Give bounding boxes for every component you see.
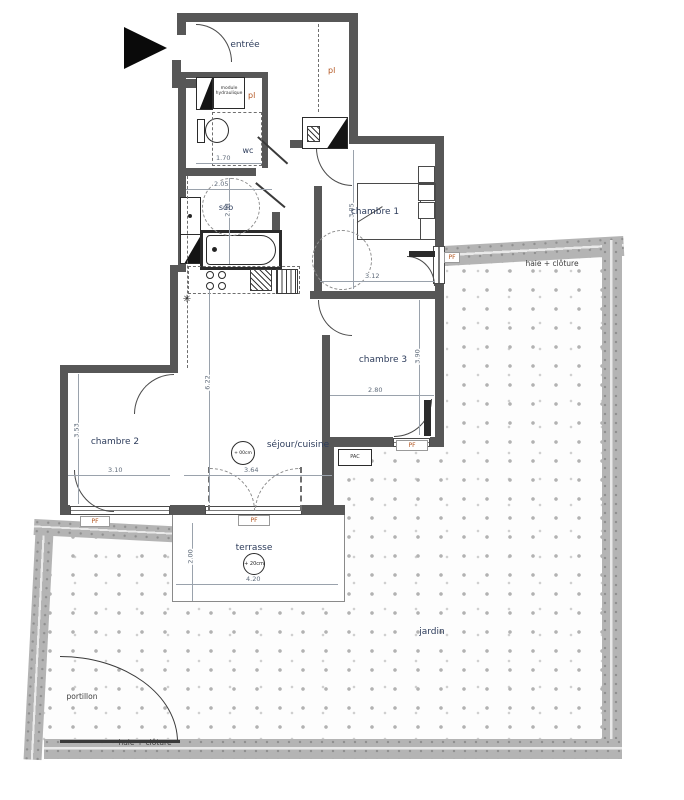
room-label-wc: wc (238, 146, 258, 155)
room-label-chambre1: chambre 1 (340, 207, 410, 217)
door-leaf-chambre3-pf (424, 400, 431, 436)
room-label-sejour: séjour/cuisine (255, 440, 341, 450)
label-haie-cloture-bottom: haie + clôture (105, 738, 185, 747)
dim-sejour-width: 3.64 (243, 467, 259, 474)
wall-sdb-top (178, 168, 256, 176)
closet-front-entry (318, 24, 319, 112)
closet-label-entry: pl (328, 66, 335, 75)
wall-sejour-bottom-b (170, 505, 205, 515)
cooktop-burner (218, 271, 226, 279)
dim-chambre3-width: 2.80 (367, 387, 383, 394)
heat-pump-unit: PAC (338, 449, 372, 466)
room-label-chambre2: chambre 2 (80, 437, 150, 447)
wall-chambre3-bottom-b (430, 437, 444, 447)
floor-plan: PF PF PF PF module hydraulique ✳ (0, 0, 684, 800)
dimension-line (196, 163, 262, 164)
duct-shaft-sdb (180, 234, 202, 264)
dim-terrasse-depth: 2.00 (188, 548, 195, 564)
dimension-line (184, 475, 332, 476)
dimension-line (353, 150, 354, 289)
closet-label-wc: pl (248, 91, 255, 100)
wall-entry-right (349, 13, 358, 144)
kitchen-sink-unit (250, 269, 272, 291)
dimension-line (176, 584, 338, 585)
room-label-entree: entrée (210, 40, 280, 50)
module-hydraulique-label: module hydraulique (214, 86, 244, 96)
room-label-terrasse: terrasse (224, 543, 284, 553)
dimension-line (330, 395, 434, 396)
door-arc-chambre1 (316, 148, 352, 186)
dimension-line (320, 281, 435, 282)
label-portillon: portillon (56, 692, 108, 701)
level-marker-sejour: + 00cm (231, 441, 255, 465)
kitchen-axis-line (187, 176, 188, 368)
washbasin-drain (188, 214, 192, 218)
wall-chambre1-top (349, 136, 444, 144)
pf-label-chambre3: PF (396, 440, 428, 451)
dim-chambre1-width: 3.12 (364, 273, 380, 280)
dimension-line (78, 374, 79, 504)
bedside-unit (418, 166, 435, 183)
wall-chambre2-west (60, 365, 68, 515)
cooktop-burner (206, 271, 214, 279)
dim-terrasse-width: 4.20 (245, 576, 261, 583)
label-haie-cloture-top: haie + clôture (512, 259, 592, 268)
dim-sejour-depth: 6.22 (205, 374, 212, 390)
pf-label-sejour: PF (238, 515, 270, 526)
duct-shaft-entry (196, 77, 213, 110)
wall-left-top (177, 13, 186, 35)
dimension-line (209, 290, 210, 503)
wall-wc-right (262, 72, 268, 168)
room-label-sdb: sdb (212, 203, 240, 212)
bathtub-drain (212, 247, 217, 252)
cooktop-burner (206, 282, 214, 290)
duct-shaft-hall (302, 117, 348, 149)
pf-label-chambre1: PF (444, 252, 460, 263)
wall-chambre3-west (322, 335, 330, 437)
wall-chambre2-top (60, 365, 178, 373)
dimension-line (229, 178, 230, 264)
room-label-chambre3: chambre 3 (348, 355, 418, 365)
hedge-fence-band-right (602, 240, 622, 759)
toilet-tank (197, 119, 205, 143)
bedside-unit (418, 184, 435, 201)
dim-chambre2-width: 3.10 (107, 467, 123, 474)
door-arc-chambre2 (134, 374, 174, 414)
wall-sejour-west (170, 265, 178, 372)
wall-chambre1-bottom (310, 291, 444, 299)
wall-entry-jamb-h (172, 79, 197, 88)
wall-chambre3-right (435, 299, 444, 445)
door-diagonal-sdb (256, 182, 286, 208)
window-chambre2-pf (70, 506, 170, 515)
dimension-line (419, 300, 420, 435)
direction-arrow-icon (124, 27, 167, 69)
wall-top (177, 13, 358, 22)
wall-sejour-bottom-c (302, 505, 345, 515)
level-marker-terrasse: + 20cm (243, 553, 265, 575)
door-leaf-chambre1-pf (409, 251, 435, 257)
door-arc-chambre3 (318, 300, 352, 336)
wall-chambre1-right-a (435, 136, 444, 246)
dim-wc-width: 1.70 (215, 155, 231, 162)
kitchen-appliance (276, 269, 298, 294)
dimension-line (68, 475, 170, 476)
dim-sdb-width: 2.05 (213, 181, 229, 188)
pf-label-chambre2: PF (80, 516, 110, 527)
room-label-jardin: jardin (407, 627, 457, 637)
boiler-symbol: ✳ (180, 294, 194, 305)
bedside-unit (418, 202, 435, 219)
cooktop-burner (218, 282, 226, 290)
